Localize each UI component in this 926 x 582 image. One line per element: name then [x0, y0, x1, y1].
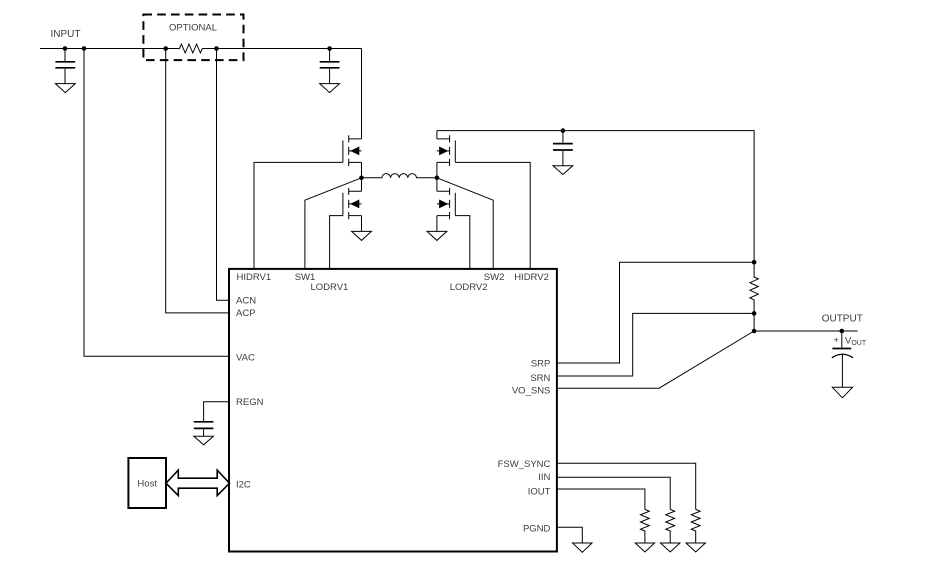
svg-text:ACN: ACN	[236, 296, 256, 307]
svg-text:VO_SNS: VO_SNS	[512, 385, 551, 396]
svg-text:INPUT: INPUT	[51, 29, 81, 40]
svg-text:IOUT: IOUT	[528, 486, 551, 497]
svg-text:ACP: ACP	[236, 308, 256, 319]
svg-text:VOUT: VOUT	[845, 336, 867, 348]
svg-text:REGN: REGN	[236, 397, 264, 408]
svg-text:PGND: PGND	[523, 524, 551, 535]
svg-text:SRP: SRP	[531, 359, 551, 370]
svg-text:+: +	[834, 335, 840, 346]
svg-text:SRN: SRN	[530, 373, 550, 384]
svg-text:Host: Host	[137, 479, 157, 490]
svg-text:HIDRV1: HIDRV1	[237, 272, 272, 283]
svg-text:OUTPUT: OUTPUT	[822, 313, 863, 324]
svg-text:VAC: VAC	[236, 352, 255, 363]
svg-text:LODRV1: LODRV1	[311, 282, 349, 293]
svg-text:OPTIONAL: OPTIONAL	[169, 23, 217, 34]
svg-text:IIN: IIN	[538, 472, 550, 483]
svg-text:LODRV2: LODRV2	[450, 282, 488, 293]
svg-text:I2C: I2C	[236, 480, 251, 491]
svg-text:FSW_SYNC: FSW_SYNC	[498, 459, 551, 470]
svg-text:HIDRV2: HIDRV2	[514, 272, 549, 283]
svg-text:SW2: SW2	[484, 272, 505, 283]
